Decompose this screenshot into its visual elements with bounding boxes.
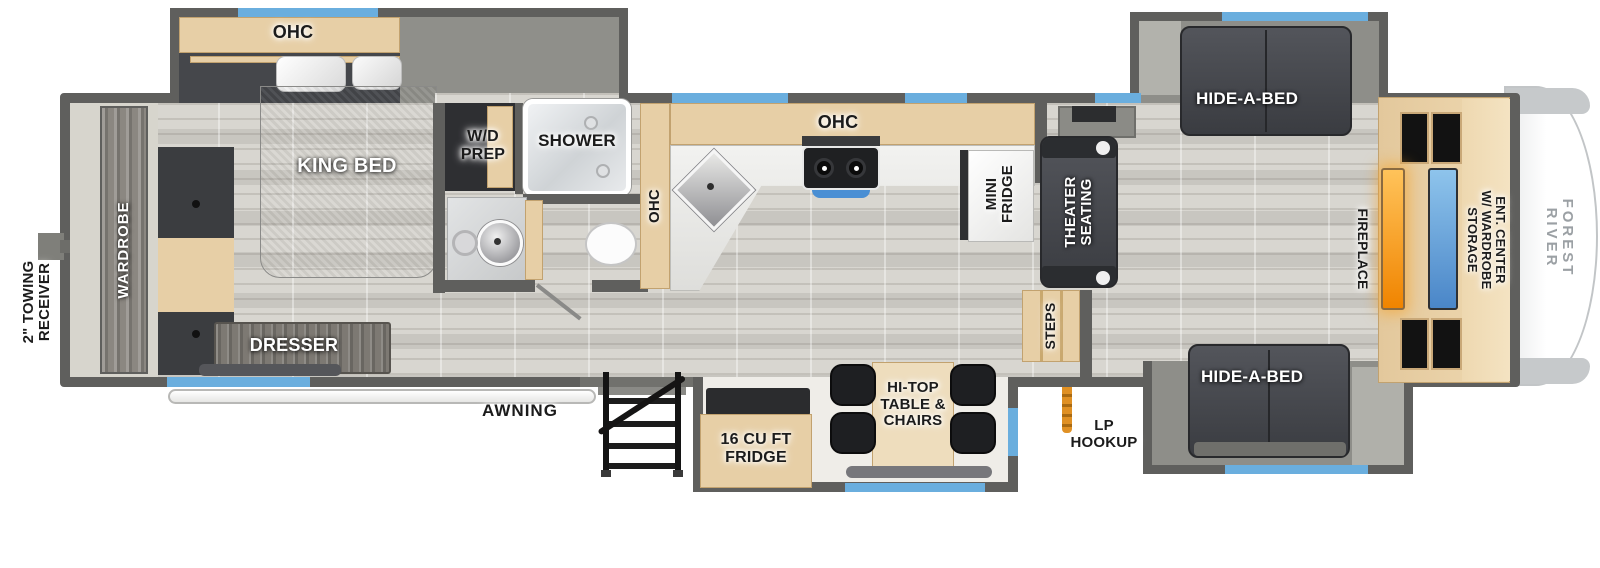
tv-panel bbox=[1428, 168, 1458, 310]
wall-steps-right bbox=[1080, 290, 1092, 377]
hide-a-bed-bottom-window bbox=[1225, 465, 1368, 474]
kitchen-sink-drain bbox=[707, 183, 714, 190]
shower-drain-1 bbox=[584, 116, 598, 130]
fireplace-label: FIREPLACE bbox=[1354, 207, 1370, 291]
bedroom-slide-window bbox=[238, 8, 378, 17]
range-hood bbox=[802, 136, 880, 146]
entry-steps-rail-right bbox=[675, 372, 681, 472]
bath-fixture bbox=[452, 230, 478, 256]
media-console-tv bbox=[1072, 106, 1116, 122]
bath-sink-drain bbox=[494, 238, 501, 245]
theater-cupholder-bottom bbox=[1096, 271, 1110, 285]
ent-center-opening-br bbox=[1431, 318, 1462, 370]
stove-burner-dot-right bbox=[854, 166, 859, 171]
awning-label: AWNING bbox=[410, 402, 630, 421]
shower-label: SHOWER bbox=[467, 132, 687, 151]
dinette-window-right bbox=[1008, 408, 1018, 456]
mini-fridge-sidewall bbox=[960, 150, 968, 240]
stove-burner-dot-left bbox=[822, 166, 827, 171]
vanity-drawers bbox=[525, 200, 543, 280]
entry-step-4 bbox=[609, 463, 675, 469]
hide-a-bed-top-slideout-shelf bbox=[1139, 21, 1181, 95]
ent-center-opening-bl bbox=[1400, 318, 1429, 370]
theater-seating-label: THEATER SEATING bbox=[1062, 172, 1096, 252]
dinette-window-bottom bbox=[845, 483, 985, 492]
bedroom-ohc-label: OHC bbox=[183, 23, 403, 43]
hi-top-label: HI-TOP TABLE & CHAIRS bbox=[853, 380, 973, 430]
hide-a-bed-top-window bbox=[1222, 12, 1368, 21]
theater-cupholder-top bbox=[1096, 141, 1110, 155]
kitchen-window-1 bbox=[672, 93, 788, 103]
interior-steps-seam-2 bbox=[1060, 291, 1063, 361]
dinette-rail bbox=[846, 466, 992, 478]
steps-label: STEPS bbox=[1043, 301, 1059, 351]
kitchen-ohc-pantry-label: OHC bbox=[646, 186, 664, 226]
hide-a-bed-bottom-sofa-seam bbox=[1268, 350, 1270, 450]
entry-step-3 bbox=[609, 443, 675, 449]
dresser-bench bbox=[199, 364, 341, 376]
hide-a-bed-top-label: HIDE-A-BED bbox=[1137, 90, 1357, 109]
shower-drain-2 bbox=[596, 164, 610, 178]
towing-receiver-label: 2" TOWING RECEIVER bbox=[19, 252, 55, 352]
wardrobe-label: WARDROBE bbox=[114, 195, 134, 305]
toilet bbox=[585, 222, 637, 266]
dresser-label: DRESSER bbox=[184, 336, 404, 356]
entry-steps-foot-left bbox=[601, 470, 611, 477]
living-window-top bbox=[1095, 93, 1141, 103]
lp-hookup-label: LP HOOKUP bbox=[1044, 418, 1164, 451]
king-bed bbox=[260, 86, 437, 278]
entry-steps-foot-right bbox=[673, 470, 683, 477]
wall-bath-bottom-left bbox=[433, 280, 535, 292]
ent-center-label: ENT. CENTER W/ WARDROBE STORAGE bbox=[1470, 160, 1502, 320]
fridge-16cuft-label: 16 CU FT FRIDGE bbox=[696, 431, 816, 466]
ent-center-opening-tl bbox=[1400, 112, 1429, 164]
bedroom-closet-shelf bbox=[158, 238, 234, 312]
bedroom-window-bottom bbox=[167, 377, 310, 387]
rv-floorplan: 2" TOWING RECEIVER AWNING LP HOOKUP OHC … bbox=[0, 0, 1600, 568]
kitchen-window-2 bbox=[905, 93, 967, 103]
fireplace-insert bbox=[1381, 168, 1405, 310]
closet-knob-1 bbox=[192, 200, 200, 208]
kitchen-ohc-upper-label: OHC bbox=[728, 113, 948, 133]
stove-oven-trim bbox=[812, 190, 870, 198]
hide-a-bed-bottom-label: HIDE-A-BED bbox=[1142, 368, 1362, 387]
brand-label: FOREST RIVER bbox=[1549, 168, 1569, 308]
mini-fridge-label: MINI FRIDGE bbox=[983, 162, 1017, 226]
hide-a-bed-top-sofa-seam bbox=[1265, 30, 1267, 132]
fridge-counter bbox=[706, 388, 810, 416]
ent-center-opening-tr bbox=[1431, 112, 1462, 164]
pillow-right bbox=[352, 56, 402, 90]
hide-a-bed-bottom-footrest bbox=[1194, 442, 1346, 456]
